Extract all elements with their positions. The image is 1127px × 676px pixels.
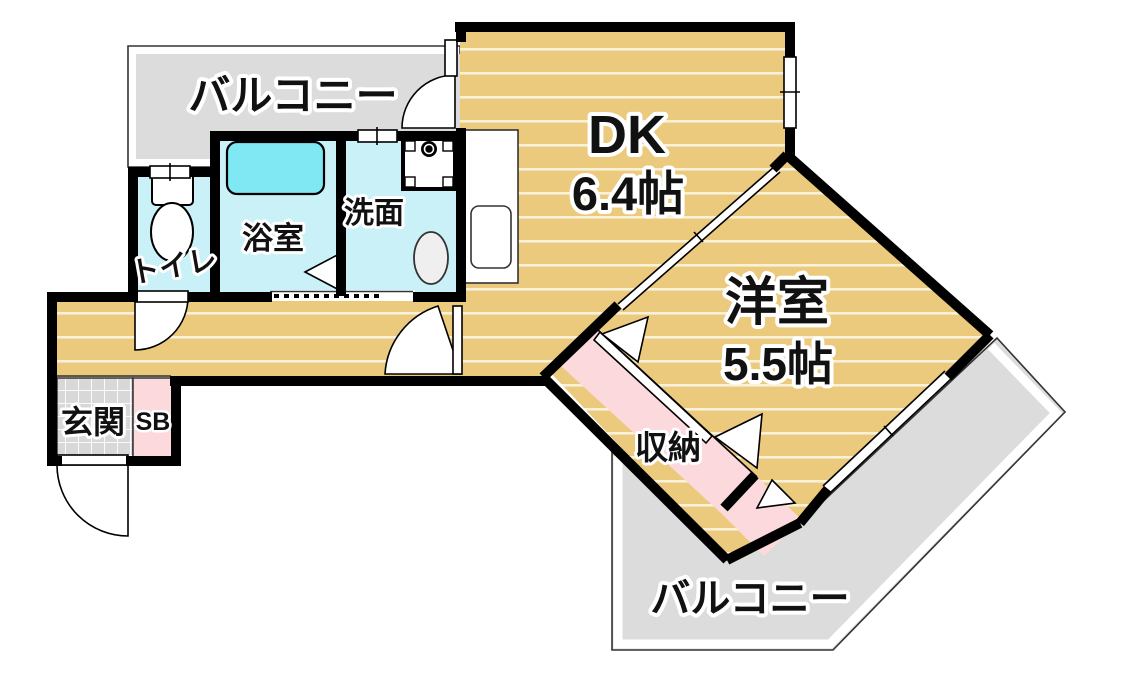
bathtub-icon [227, 142, 324, 194]
washroom-label: 洗面 [344, 197, 404, 230]
western-size-label: 5.5帖 [723, 338, 833, 390]
western-label: 洋室 [725, 274, 829, 332]
wash-basin-icon [414, 232, 448, 284]
balcony-top-label: バルコニー [188, 72, 397, 119]
entrance-door-arc [57, 455, 128, 536]
bath-label: 浴室 [242, 221, 304, 256]
kitchen-sink-icon [471, 206, 511, 268]
shoebox-label: SB [136, 408, 171, 436]
floorplan-page: バルコニー DK 6.4帖 洋室 5.5帖 収納 浴室 洗面 トイレ 玄関 SB… [0, 0, 1127, 676]
bath-window [358, 127, 397, 145]
entrance-label: 玄関 [61, 404, 125, 440]
storage-label: 収納 [635, 429, 701, 466]
washer-pan-icon [403, 139, 455, 189]
dk-label: DK [588, 105, 666, 165]
toilet-window [150, 163, 190, 181]
dk-size-label: 6.4帖 [572, 167, 684, 220]
floorplan-svg: バルコニー DK 6.4帖 洋室 5.5帖 収納 浴室 洗面 トイレ 玄関 SB… [0, 0, 1127, 676]
balcony-bottom-label: バルコニー [650, 577, 849, 621]
